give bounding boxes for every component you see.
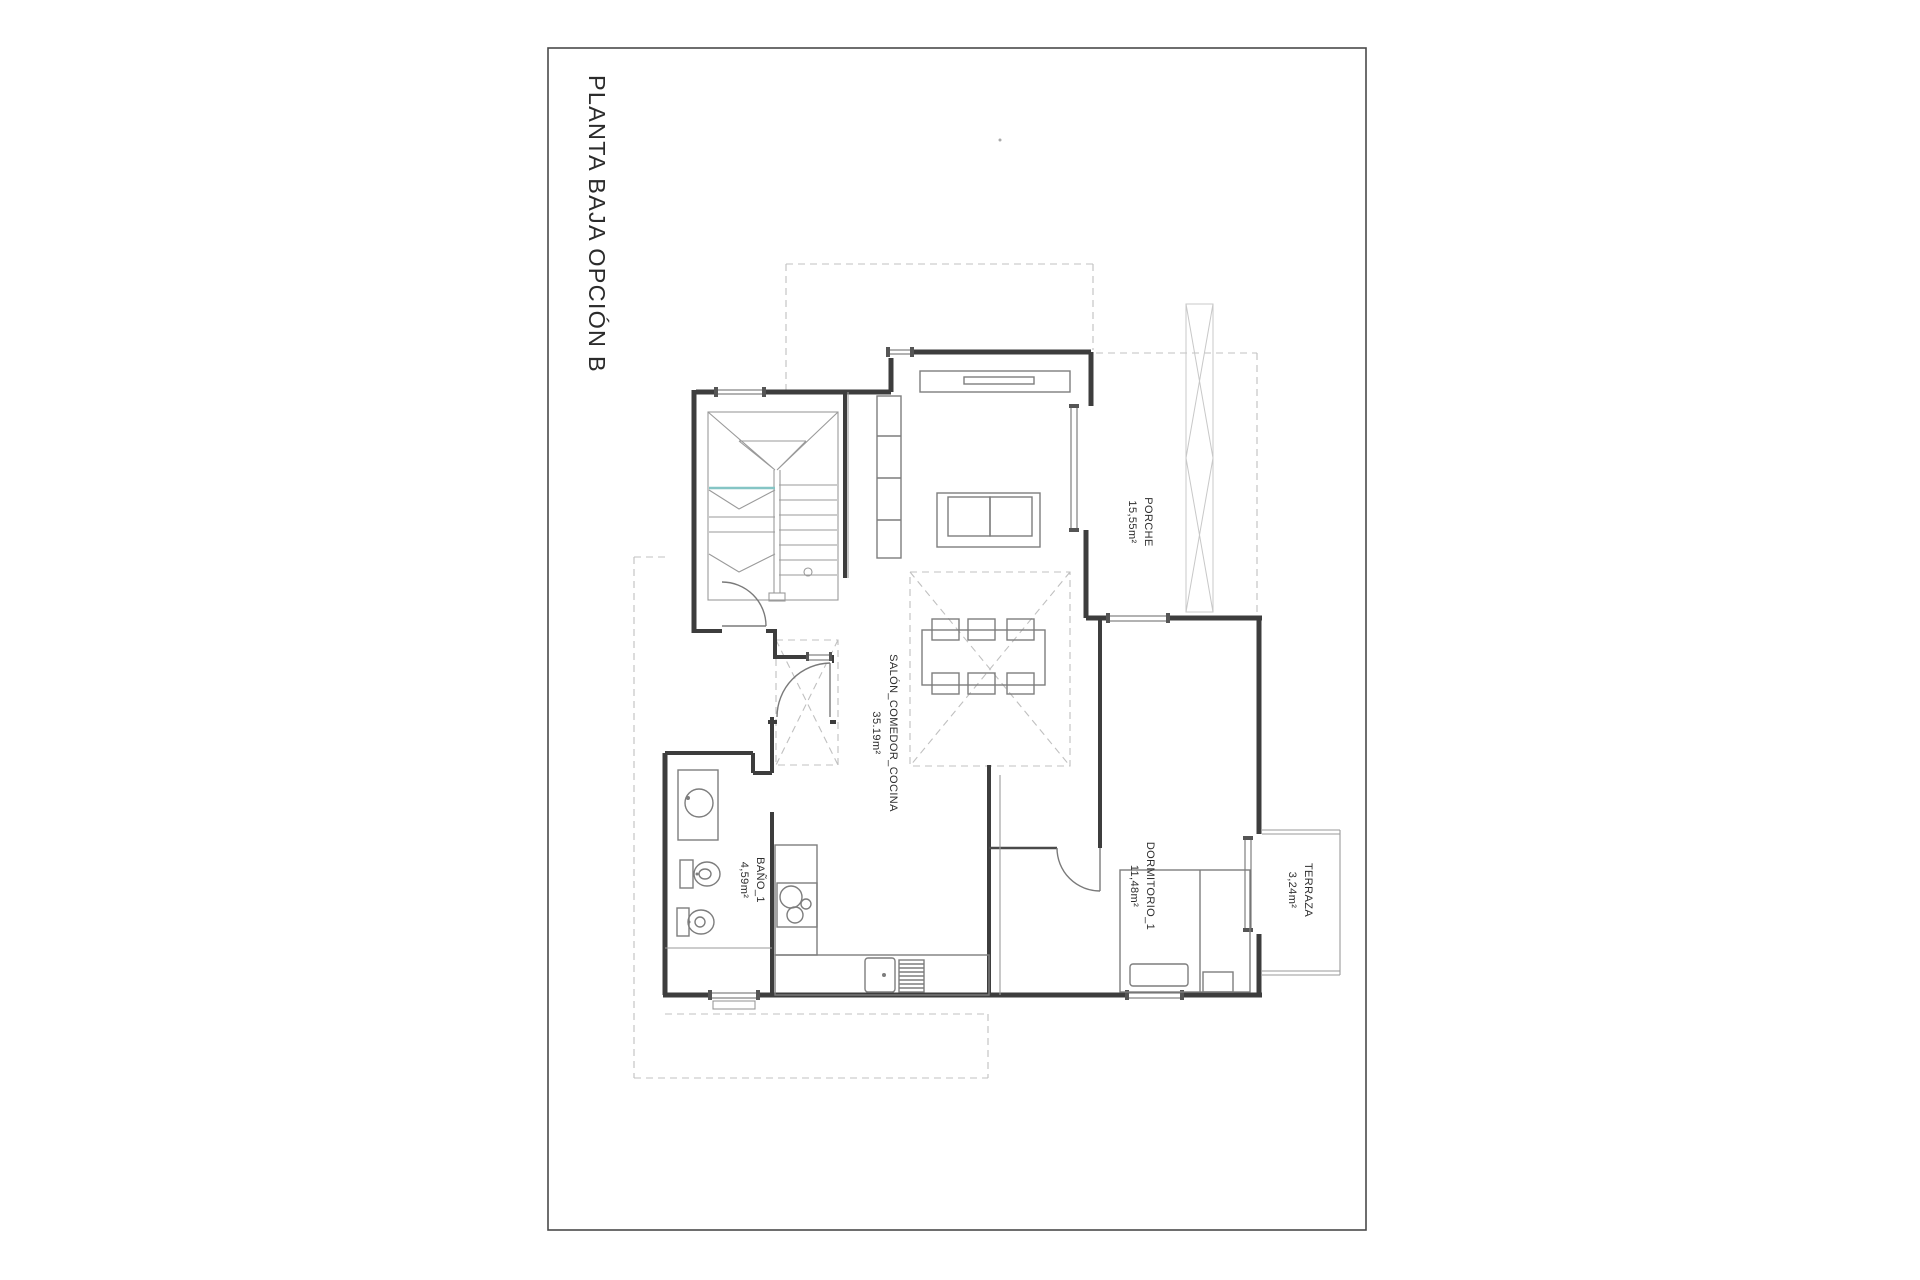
svg-text:SALÓN_COMEDOR_COCINA: SALÓN_COMEDOR_COCINA xyxy=(887,654,900,812)
bedroom-door xyxy=(1057,848,1100,891)
shelf-unit xyxy=(877,396,901,558)
staircase xyxy=(708,412,838,601)
dining-chair xyxy=(968,673,995,694)
kitchen-counter xyxy=(775,845,989,995)
floor-plan-page: PLANTA BAJA OPCIÓN B xyxy=(0,0,1920,1280)
room-label-terraza: TERRAZA 3,24m² xyxy=(1286,863,1314,917)
pillow xyxy=(1130,964,1188,986)
svg-text:TERRAZA: TERRAZA xyxy=(1302,863,1314,917)
dining-chair xyxy=(932,673,959,694)
bathroom-sink xyxy=(678,770,718,840)
svg-text:3,24m²: 3,24m² xyxy=(1286,872,1298,909)
terrace xyxy=(1262,830,1340,975)
room-label-porche: PORCHE 15,55m² xyxy=(1126,497,1154,546)
svg-text:4,59m²: 4,59m² xyxy=(738,862,750,899)
svg-text:11,48m²: 11,48m² xyxy=(1128,865,1140,907)
drawing-title: PLANTA BAJA OPCIÓN B xyxy=(584,75,610,373)
sofa xyxy=(937,493,1040,547)
dining-table xyxy=(922,619,1045,694)
room-label-salon: SALÓN_COMEDOR_COCINA 35.19m² xyxy=(870,654,900,812)
cooktop xyxy=(777,883,817,927)
dining-chair xyxy=(1007,673,1034,694)
floor-plan-canvas: PLANTA BAJA OPCIÓN B xyxy=(0,0,1920,1280)
room-labels: PORCHE 15,55m² SALÓN_COMEDOR_COCINA 35.1… xyxy=(738,497,1314,930)
room-label-dormitorio: DORMITORIO_1 11,48m² xyxy=(1128,842,1156,930)
svg-text:15,55m²: 15,55m² xyxy=(1126,500,1138,543)
pergola-beam xyxy=(1186,304,1213,612)
svg-text:35.19m²: 35.19m² xyxy=(870,711,882,754)
window-sill xyxy=(713,1001,755,1009)
print-speck xyxy=(999,139,1002,142)
svg-text:DORMITORIO_1: DORMITORIO_1 xyxy=(1144,842,1156,930)
exterior-walls xyxy=(663,352,1262,995)
svg-text:PORCHE: PORCHE xyxy=(1142,497,1154,546)
drawing-border xyxy=(548,48,1366,1230)
stair-door xyxy=(722,582,766,626)
drainer xyxy=(899,960,924,992)
bidet xyxy=(677,908,714,936)
room-label-bano: BAÑO_1 4,59m² xyxy=(738,857,767,903)
dining-void-outline xyxy=(910,572,1070,766)
nightstand xyxy=(1203,972,1233,992)
tv-sideboard xyxy=(920,371,1070,392)
kitchen-sink xyxy=(865,958,895,992)
svg-text:BAÑO_1: BAÑO_1 xyxy=(754,857,767,903)
toilet xyxy=(680,860,720,888)
